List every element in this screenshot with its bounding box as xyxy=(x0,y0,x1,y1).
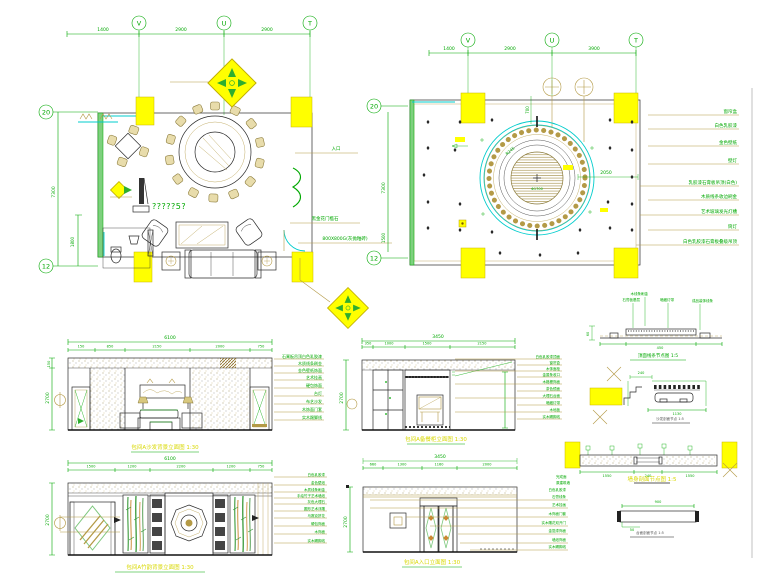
annotation: 硬包饰面 xyxy=(311,521,325,526)
dim-text: 350 xyxy=(365,342,372,346)
bamboo-mural-panel xyxy=(230,495,255,553)
crosshair-icon xyxy=(593,410,607,424)
drawing-title: 墙身剖面节点图 1:5 xyxy=(627,475,677,483)
annotation: 壁灯 xyxy=(728,157,737,164)
column xyxy=(136,97,154,125)
ceiling-annotations: 窗帘盒 白色乳胶漆 金色壁纸 壁灯 乳胶漆石膏板吊顶(白色) 木质线条收边刷金 … xyxy=(636,108,739,245)
annotation: 金属条收口 xyxy=(543,372,561,377)
dim-text: 6100 xyxy=(164,456,176,462)
annotation: 白色乳胶漆 xyxy=(308,472,326,477)
grid-bubble-u: U xyxy=(222,20,227,28)
tv-panel xyxy=(139,178,144,204)
elevation-view-marker-icon xyxy=(110,182,132,199)
grid-bubble-20: 20 xyxy=(42,109,50,117)
detail-molding-section: 木线条刷金 石膏板基层 暗藏灯带 成品装饰线条 60 450 顶面线条节点图 1… xyxy=(586,291,722,360)
annotation: 硬包饰面 xyxy=(306,382,322,388)
dim-text: 1200 xyxy=(128,465,137,469)
elevation-a: 6100 150 850 2150 2000 750 2700 150 石膏板吊… xyxy=(45,335,324,452)
column xyxy=(292,252,313,282)
dim-text: 1130 xyxy=(673,412,682,416)
note-entry: 入口 xyxy=(332,146,341,152)
annotation: 金色壁纸 xyxy=(719,139,737,146)
grid-bubble-v: V xyxy=(466,37,471,45)
dim-text: 50 xyxy=(630,528,634,532)
annotation: 木质线条刷金 xyxy=(298,360,322,366)
dim-text: 2150 xyxy=(478,342,487,346)
grid-bubble-t: T xyxy=(633,37,638,45)
annotation: 木质线条收边刷金 xyxy=(701,193,737,200)
annotation: 墙纸饰面 xyxy=(552,537,566,542)
annotation: 茶色镜面 xyxy=(546,386,560,391)
column xyxy=(461,93,485,123)
dim-text: 1400 xyxy=(97,27,109,33)
cad-drawing-canvas: V U T 1400 2900 2900 20 12 7300 1800 xyxy=(0,0,780,585)
dim-text: 2700 xyxy=(339,392,345,404)
dim-text: 1500 xyxy=(87,465,96,469)
dim-text: 1550 xyxy=(686,474,695,478)
dim-text: 2000 xyxy=(483,463,492,467)
dim-text: 240 xyxy=(638,371,645,375)
octagon-medallion xyxy=(171,505,207,541)
detail-wall-section: 1550 240 1550 完成面 原建筑墙 墙身剖面节点图 1:5 xyxy=(556,442,737,485)
annotation: 木地板 xyxy=(550,407,561,412)
elevation-c-annotations: 白色乳胶漆 金色壁纸 木质线条刷金 手绘竹子艺术墙纸 灰色大理石 圆形艺术浮雕 … xyxy=(274,472,327,543)
floor-plan: V U T 1400 2900 2900 20 12 7300 1800 xyxy=(39,16,392,328)
annotation: 实木踢脚线 xyxy=(549,544,567,549)
annotation: 艺术玻璃发光灯槽 xyxy=(701,208,737,215)
ceiling-plan: V U T 1400 2900 3900 20 12 7300 1500 Φ17… xyxy=(367,33,739,278)
square-table xyxy=(107,125,150,168)
annotation: 完成面 xyxy=(556,474,567,479)
pipe-symbols xyxy=(586,444,692,455)
note-threshold: 黑金花门槛石 xyxy=(312,215,339,222)
drawing-title: 包间A竹韵背景立面图 1:30 xyxy=(126,563,194,571)
annotation: 布艺沙发 xyxy=(306,398,322,404)
annotation: 木饰面柜 xyxy=(546,366,560,371)
drawing-title: 包间A沙发背景立面图 1:30 xyxy=(131,443,199,451)
grid-bubble-20: 20 xyxy=(370,103,378,111)
elevation-d-annotations: 白色乳胶漆 石膏线条 艺术挂画 木饰面门套 实木雕花双开门 金箔漆饰面 墙纸饰面… xyxy=(542,487,567,549)
note-floor-tile: 800X800G(灰抛釉砖) xyxy=(322,235,368,242)
annotation: 木线条刷金 xyxy=(631,291,649,296)
dim-text: 1300 xyxy=(398,463,407,467)
annotation: 木饰面 xyxy=(315,529,326,534)
door-leaf xyxy=(72,387,90,430)
dim-text: 1160 xyxy=(435,463,444,467)
sofa-set xyxy=(140,217,276,278)
annotation: 金色壁纸饰面 xyxy=(298,367,322,373)
annotation: 白色乳胶漆 xyxy=(715,122,738,129)
dim-text: 1000 xyxy=(385,342,394,346)
grid-bubble-u: U xyxy=(550,37,555,45)
dim-text: 2700 xyxy=(343,516,349,528)
dim-text: 1500 xyxy=(423,342,432,346)
annotation: 暗藏灯带 xyxy=(546,400,560,405)
dim-text: 2200 xyxy=(177,465,186,469)
annotation: 艺术挂画 xyxy=(306,374,322,380)
dim-text: 1800 xyxy=(70,236,75,247)
wall-frame xyxy=(390,513,406,528)
dim-text: 1400 xyxy=(443,46,455,52)
dim-text: 150 xyxy=(78,345,85,349)
elevation-a-annotations: 石膏板吊顶白色乳胶漆 木质线条刷金 金色壁纸饰面 艺术挂画 硬包饰面 台灯 布艺… xyxy=(274,353,324,420)
dim-text: 60 xyxy=(586,332,590,336)
elevation-marker-icon xyxy=(208,59,256,107)
annotation: 乳胶漆石膏板吊顶(白色) xyxy=(688,179,737,186)
bamboo-mural-panel xyxy=(123,495,148,553)
cad-sheet: V U T 1400 2900 2900 20 12 7300 1800 xyxy=(0,0,780,585)
annotation: 暗藏灯带 xyxy=(660,297,674,302)
annotation: 木质线条刷金 xyxy=(304,487,325,492)
dim-text: 450 xyxy=(657,346,664,350)
column xyxy=(291,97,312,127)
annotation: 金色壁纸 xyxy=(311,480,325,485)
drawing-title: 顶面线条节点图 1:5 xyxy=(638,352,678,359)
datum-circle-icon xyxy=(347,399,357,409)
annotation: 大理石台面 xyxy=(543,393,561,398)
elevation-d: 3450 660 1300 1160 2000 2700 白色乳胶漆 石膏线条 … xyxy=(343,454,568,567)
dim-text: 2700 xyxy=(45,514,51,526)
dim-text: 2700 xyxy=(45,392,51,404)
dim-text: 2900 xyxy=(261,27,273,33)
drawing-title: 包间A入口立面图 1:30 xyxy=(404,558,461,566)
dim-text: 660 xyxy=(370,463,377,467)
dim-text: 2150 xyxy=(153,345,162,349)
annotation: 实木踢脚线 xyxy=(302,414,322,420)
annotation: 手绘竹子艺术墙纸 xyxy=(297,493,325,498)
dim-text: 6100 xyxy=(164,335,176,341)
annotation: 石膏板基层 xyxy=(623,297,641,302)
annotation: 实木踢脚线 xyxy=(543,414,561,419)
column xyxy=(565,442,580,468)
ceiling-center-label: Φ1700 xyxy=(531,187,543,191)
detail-counter-section: 900 50 台面剖面节点 1:5 xyxy=(617,500,699,537)
dim-text: 750 xyxy=(258,465,265,469)
dim-text: 7300 xyxy=(381,182,387,194)
elevation-b: 3450 350 1000 1500 2150 2700 白色乳胶漆顶面 窗帘盒… xyxy=(339,334,562,444)
table-lamp-icon xyxy=(138,397,148,409)
dim-text: 2050 xyxy=(600,170,612,176)
dim-text: 850 xyxy=(107,345,114,349)
elevation-marker-icon xyxy=(328,288,369,329)
entry-double-door xyxy=(420,498,457,552)
room-label: ?????5? xyxy=(152,202,186,211)
annotation: 木饰面门套 xyxy=(549,511,567,516)
detail-sofa-section: 240 1130 沙发剖面节点 1:5 xyxy=(590,367,706,424)
column xyxy=(461,248,485,278)
annotation: 艺术挂画 xyxy=(552,502,566,507)
dim-text: 2900 xyxy=(175,27,187,33)
grid-bubble-12: 12 xyxy=(370,255,378,263)
dim-text: R245 xyxy=(504,145,516,156)
column xyxy=(614,93,638,123)
drawing-title: 台面剖面节点 1:5 xyxy=(636,530,664,535)
double-door-symbol xyxy=(293,168,301,207)
door-swing-arc xyxy=(284,230,305,251)
annotation: 木饰面门套 xyxy=(302,406,322,412)
annotation: 白色乳胶漆顶面 xyxy=(536,354,561,359)
annotation: 实木踢脚线 xyxy=(308,538,326,543)
annotation: 白色乳胶漆石膏板叠级吊顶 xyxy=(683,238,737,245)
annotation: 白色乳胶漆 xyxy=(549,487,567,492)
annotation: 马赛克拼花 xyxy=(308,513,326,518)
round-dining-table xyxy=(165,102,265,202)
grid-bubble-t: T xyxy=(307,20,312,28)
annotation: 圆形艺术浮雕 xyxy=(304,506,325,511)
dim-text: 2900 xyxy=(504,46,516,52)
dim-text: 1500 xyxy=(381,232,386,243)
annotation: 实木雕花双开门 xyxy=(542,520,567,525)
grid-bubble-v: V xyxy=(137,20,142,28)
annotation: 原建筑墙 xyxy=(556,480,570,485)
dim-text: 3900 xyxy=(588,46,600,52)
column xyxy=(134,252,152,282)
drawing-title: 包间A备餐柜立面图 1:30 xyxy=(405,435,467,443)
annotation: 石膏线条 xyxy=(552,494,566,499)
column xyxy=(590,388,622,405)
annotation: 台灯 xyxy=(314,390,322,396)
dim-text: 150 xyxy=(47,361,51,368)
dim-text: 1200 xyxy=(227,465,236,469)
dim-text: 2000 xyxy=(216,345,225,349)
crosshair-icon xyxy=(607,367,621,381)
dim-text: 700 xyxy=(525,106,530,114)
drawing-title: 沙发剖面节点 1:5 xyxy=(656,416,684,421)
elevation-c: 6100 1500 1200 2200 1200 750 2700 白色乳胶漆 … xyxy=(45,456,327,572)
annotation: 木格栅饰面 xyxy=(543,379,561,384)
artwork xyxy=(140,385,185,398)
annotation: 窗帘盒 xyxy=(550,360,561,365)
dim-text: 900 xyxy=(655,500,662,504)
dim-text: 750 xyxy=(258,345,265,349)
annotation: 石膏板吊顶白色乳胶漆 xyxy=(282,353,322,359)
annotation: 金箔漆饰面 xyxy=(549,528,567,533)
column xyxy=(614,248,638,278)
circular-ceiling-feature: Φ1700 xyxy=(480,116,594,240)
lattice-door xyxy=(70,502,115,555)
dim-text: 3450 xyxy=(432,334,444,340)
annotation: 窗帘盒 xyxy=(724,108,738,115)
annotation: 灰色大理石 xyxy=(308,499,326,504)
dim-text: 3450 xyxy=(434,454,446,460)
dim-text: 7300 xyxy=(51,186,57,198)
dim-text: 1550 xyxy=(603,474,612,478)
grid-bubble-12: 12 xyxy=(42,263,50,271)
door-leaf xyxy=(250,387,269,430)
annotation: 成品装饰线条 xyxy=(692,298,713,303)
annotation: 筒灯 xyxy=(728,223,737,230)
